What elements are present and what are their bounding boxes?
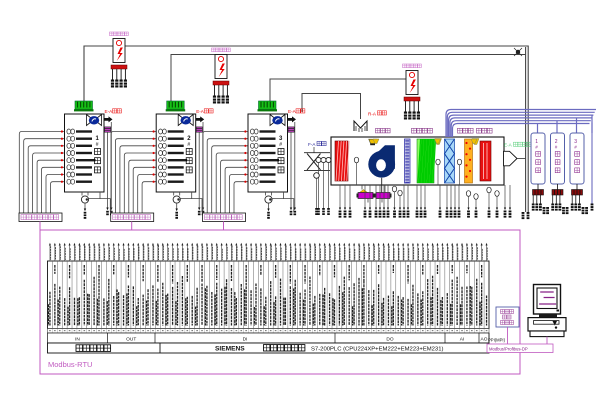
svg-text:AO: AO [481,336,488,342]
svg-text:F-A: F-A [308,142,316,147]
svg-text:SIEMENS: SIEMENS [215,346,245,353]
svg-text:R-A: R-A [368,112,377,117]
svg-text:E-A: E-A [105,109,114,114]
svg-text:E-A: E-A [504,143,513,148]
svg-text:E-A: E-A [288,109,297,114]
svg-text:Modbus-RTU: Modbus-RTU [48,360,92,369]
svg-text:IN: IN [75,336,80,342]
svg-text:#: # [96,142,99,148]
svg-text:E-A: E-A [196,109,205,114]
svg-text:#: # [187,142,190,148]
svg-text:AI: AI [460,336,465,342]
svg-text:#: # [279,142,282,148]
svg-text:PPI(MPI): PPI(MPI) [488,338,506,343]
svg-text:DO: DO [386,336,393,342]
svg-text:S7-200PLC (CPU224XP+EM222+EM22: S7-200PLC (CPU224XP+EM222+EM223+EM231) [311,346,443,352]
svg-text:DI: DI [243,336,248,342]
svg-text:OUT: OUT [126,336,136,342]
svg-text:Modbus/Profibus-DP: Modbus/Profibus-DP [489,347,528,352]
